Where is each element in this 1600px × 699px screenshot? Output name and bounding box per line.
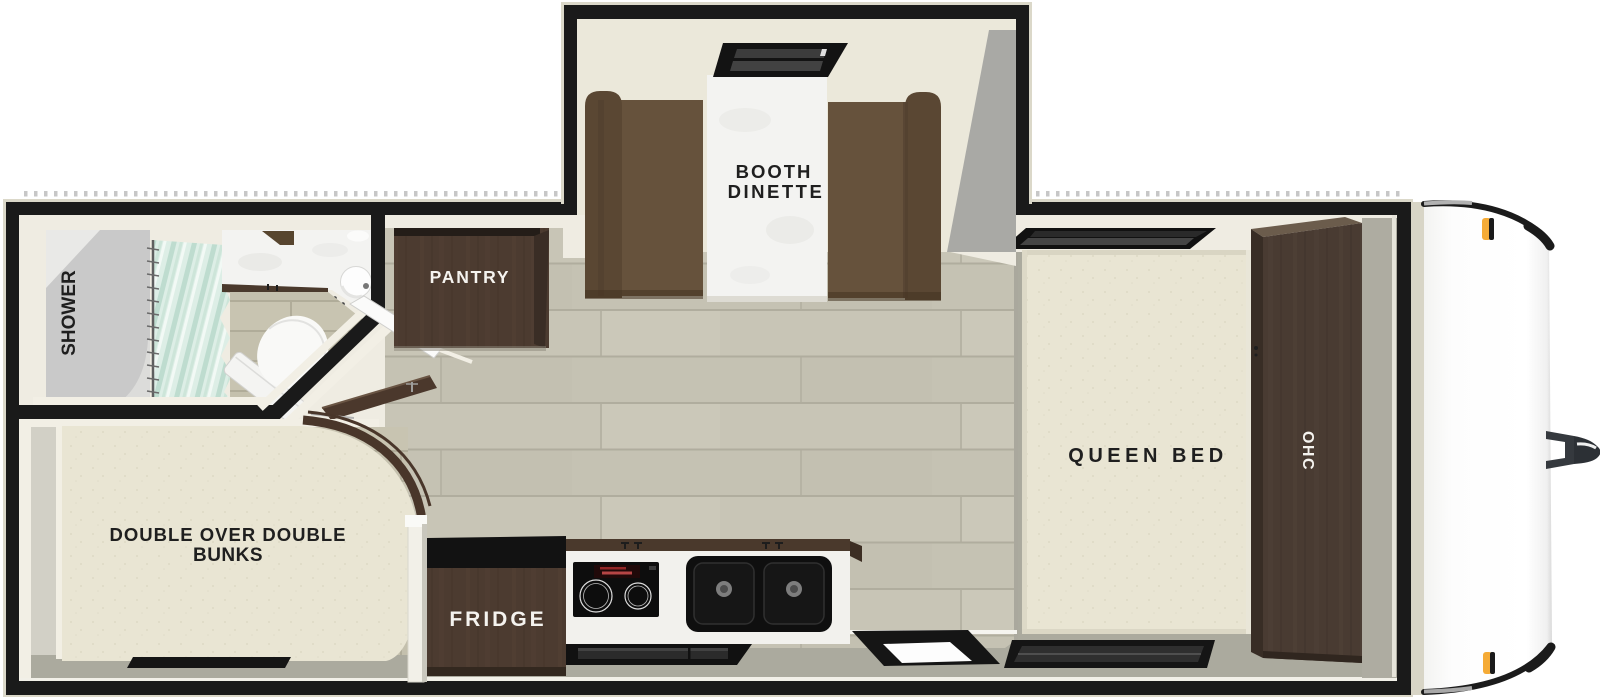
svg-text:BOOTH: BOOTH xyxy=(736,161,813,182)
svg-text:BUNKS: BUNKS xyxy=(193,545,263,566)
svg-text:DINETTE: DINETTE xyxy=(728,181,825,202)
svg-text:OHC: OHC xyxy=(1299,431,1316,471)
svg-text:PANTRY: PANTRY xyxy=(430,267,511,287)
svg-text:FRIDGE: FRIDGE xyxy=(449,608,546,631)
svg-text:DOUBLE OVER DOUBLE: DOUBLE OVER DOUBLE xyxy=(110,524,347,545)
svg-text:QUEEN BED: QUEEN BED xyxy=(1068,445,1227,467)
svg-text:SHOWER: SHOWER xyxy=(59,270,80,356)
